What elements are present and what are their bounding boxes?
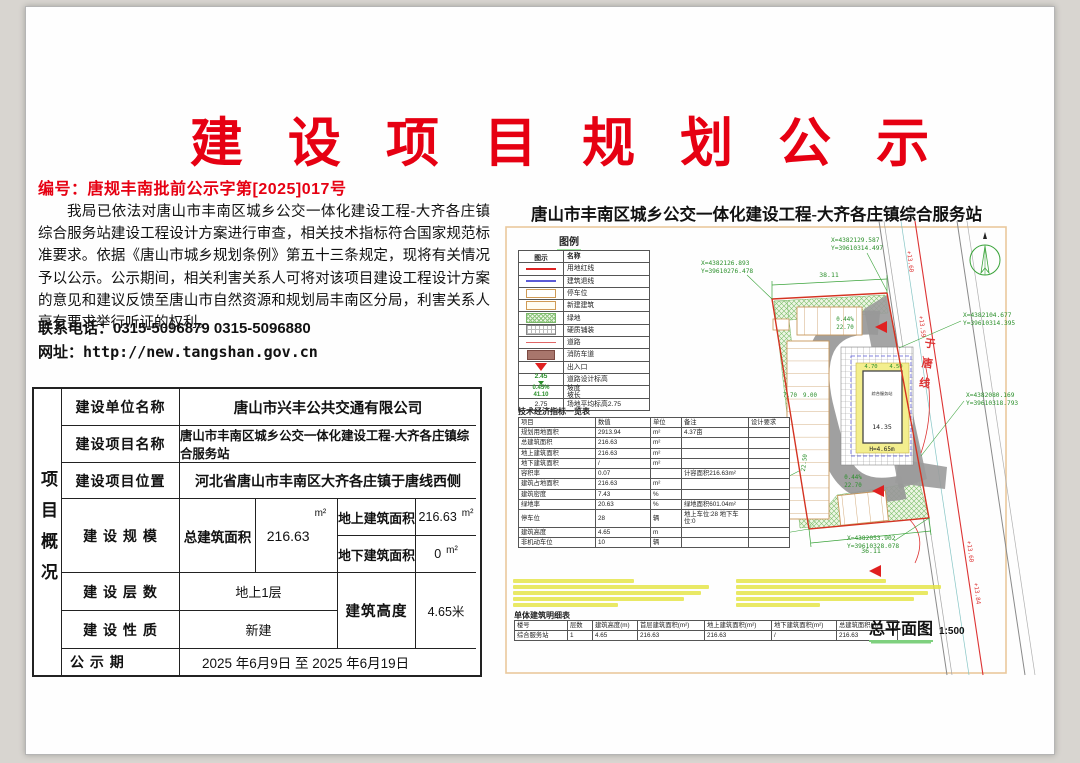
legend-col-symbol: 图示 [519,251,564,262]
legend-row: 硬质铺装 [519,325,649,337]
below-area-unit: m² [446,536,458,556]
table-cell [749,438,790,448]
slope-len-1: 22.70 [836,325,854,331]
road-line-icon [519,337,564,348]
hard-paving-icon [519,325,564,336]
coord-label-x: X=4382129.587 [831,237,880,244]
notice-page: 建 设 项 目 规 划 公 示 编号：唐规丰南批前公示字第[2025]017号 … [25,6,1055,755]
floors-label: 建 设 层 数 [62,573,180,611]
legend-item-label: 新建建筑 [564,300,649,311]
coord-label-y: Y=39610276.478 [701,268,753,275]
floors-value: 地上1层 [180,573,338,611]
table-cell: 216.63 [596,448,651,458]
page-title: 建 设 项 目 规 划 公 示 [26,101,1054,177]
table-cell: 地下建筑面积 [519,458,596,468]
coord-label-y: Y=39610328.078 [847,543,899,550]
plan-scale-label: 总平面图 1:500 [869,615,965,642]
coord-label-y: Y=39610318.793 [966,400,1018,407]
coord-label-y: Y=39610314.497 [831,245,883,252]
table-cell: 辆 [651,510,682,527]
road-elevation-icon: 2.45 [519,374,564,385]
table-cell: 2913.94 [596,428,651,438]
project-label: 建设项目名称 [62,426,180,463]
entrance-arrow-icon [869,565,881,577]
table-row: 地上建筑面积216.63m² [519,448,790,458]
project-value: 唐山市丰南区城乡公交一体化建设工程-大齐各庄镇综合服务站 [180,426,476,463]
coord-label-x: X=4382126.893 [701,260,750,267]
legend-item-label: 绿地 [564,312,649,323]
table-cell: 216.63 [705,631,772,641]
table-header-cell: 建筑高度(m) [593,621,638,631]
legend-item-label: 消防车道 [564,349,649,360]
unit-value: 唐山市兴丰公共交通有限公司 [180,389,476,426]
table-header-cell: 楼号 [515,621,568,631]
table-cell: 总建筑面积 [519,438,596,448]
setback-line-icon [519,276,564,287]
table-cell: / [772,631,837,641]
entrance-exit-icon [519,362,564,373]
table-cell: 综合服务站 [515,631,568,641]
legend-row: 道路 [519,337,649,349]
elevation-label: +13.60 [905,250,915,273]
slope-pct-2: 0.44% [844,475,862,481]
north-compass-icon [970,232,1000,275]
table-cell [749,469,790,479]
table-cell: 绿地率 [519,499,596,509]
above-area-value: 216.63 m² [416,499,476,536]
table-cell [682,448,749,458]
table-cell [651,469,682,479]
notes-text-lines [513,579,945,607]
table-cell: 建筑密度 [519,489,596,499]
building-length-label: 14.35 [872,423,892,431]
table-header-cell: 地上建筑面积(m²) [705,621,772,631]
above-area-unit: m² [462,499,474,519]
coord-label-x: X=4382104.677 [963,312,1012,319]
table-cell: 216.63 [638,631,705,641]
table-row: 容积率0.07计容面积216.63m² [519,469,790,479]
table-cell: 容积率 [519,469,596,479]
table-cell [749,458,790,468]
table-cell [682,438,749,448]
table-cell: 28 [596,510,651,527]
legend-row: 消防车道 [519,349,649,361]
coord-label-y: Y=39610314.395 [963,320,1015,327]
table-cell: m [651,527,682,537]
table-cell: m² [651,479,682,489]
table-cell: 地上车位:28 地下车位:0 [682,510,749,527]
table-cell: 0.07 [596,469,651,479]
legend-item-label: 坡度 坡长 [564,386,649,397]
table-cell: 地上建筑面积 [519,448,596,458]
table-header-cell: 地下建筑面积(m²) [772,621,837,631]
table-row: 地下建筑面积/m² [519,458,790,468]
plan-scale-value: 1:500 [939,626,965,637]
tech-indicators-table: 项目数值单位备注设计要求规划用地面积2913.94m²4.37亩总建筑面积216… [518,417,790,548]
table-cell: m² [651,438,682,448]
table-cell: 7.43 [596,489,651,499]
table-cell [682,479,749,489]
table-cell: 216.63 [596,479,651,489]
table-cell: 辆 [651,537,682,547]
table-header-row: 楼号层数建筑高度(m)首层建筑面积(m²)地上建筑面积(m²)地下建筑面积(m²… [515,621,898,631]
slope-len-2: 22.70 [844,483,862,489]
table-row: 规划用地面积2913.94m²4.37亩 [519,428,790,438]
table-cell: % [651,489,682,499]
below-area-number: 0 [434,547,441,561]
table-cell: 216.63 [596,438,651,448]
table-row: 综合服务站14.65216.63216.63/216.63 [515,631,898,641]
legend-row: 建筑退线 [519,276,649,288]
website-url: 网址：http://new.tangshan.gov.cn [38,341,318,362]
table-cell: 计容面积216.63m² [682,469,749,479]
table-cell: 4.65 [593,631,638,641]
table-header-cell: 首层建筑面积(m²) [638,621,705,631]
legend-row: 0.45% 41.10 坡度 坡长 [519,386,649,398]
total-area-number: 216.63 [267,528,310,544]
table-cell: m² [651,458,682,468]
table-header-cell: 层数 [568,621,593,631]
table-row: 停车位28辆地上车位:28 地下车位:0 [519,510,790,527]
table-row: 总建筑面积216.63m² [519,438,790,448]
legend-item-label: 停车位 [564,288,649,299]
legend-row: 出入口 [519,362,649,374]
table-cell [749,499,790,509]
table-cell [749,448,790,458]
table-cell: 10 [596,537,651,547]
elevation-label: +13.59 [917,315,927,338]
table-cell: 规划用地面积 [519,428,596,438]
table-cell [749,428,790,438]
legend-item-label: 道路设计标高 [564,374,649,385]
contact-phone: 联系电话：0315-5096879 0315-5096880 [38,317,311,338]
legend-item-label: 用地红线 [564,263,649,274]
coord-label-x: X=4382053.902 [847,535,896,542]
parking-stall-icon [519,288,564,299]
table-header-row: 项目数值单位备注设计要求 [519,418,790,428]
slope-pct-1: 0.44% [836,317,854,323]
height-label: 建筑高度 [338,573,416,649]
elevation-label: +13.60 [965,540,975,563]
slope-sample: 0.45% 41.10 [532,385,549,398]
table-cell: 建筑高度 [519,527,596,537]
table-cell [749,479,790,489]
legend-row: 停车位 [519,288,649,300]
total-area-label: 总建筑面积 [180,499,256,573]
nature-label: 建 设 性 质 [62,611,180,649]
building-width-dim-1: 4.70 [864,364,877,370]
building-name-label: 综合服务站 [872,390,893,397]
table-header-cell: 设计要求 [749,418,790,428]
table-cell: m² [651,428,682,438]
entrance-arc-2 [909,519,920,563]
legend-col-name: 名称 [564,251,649,262]
table-row: 建筑高度4.65m [519,527,790,537]
red-boundary-line-icon [519,263,564,274]
table-row: 绿地率20.63%绿地面积601.04m² [519,499,790,509]
table-cell [682,489,749,499]
legend-item-label: 硬质铺装 [564,325,649,336]
building-block: 综合服务站 14.35 H=4.65m 4.70 4.50 [841,347,913,465]
unit-label: 建设单位名称 [62,389,180,426]
above-area-number: 216.63 [419,510,457,524]
table-row: 非机动车位10辆 [519,537,790,547]
legend-item-label: 建筑退线 [564,276,649,287]
green-space-icon [519,312,564,323]
notice-paragraph: 我局已依法对唐山市丰南区城乡公交一体化建设工程-大齐各庄镇综合服务站建设工程设计… [38,201,490,334]
new-building [863,371,902,443]
table-cell [682,458,749,468]
elevation-label: +13.84 [972,582,982,605]
height-value: 4.65米 [416,573,476,649]
location-value: 河北省唐山市丰南区大齐各庄镇于唐线西侧 [180,463,476,499]
legend-table: 图示 名称 用地红线 建筑退线 停车位 新建建筑 绿地 硬质铺装 [518,250,650,411]
table-cell: 20.63 [596,499,651,509]
below-area-value: 0 m² [416,536,476,573]
legend-header-row: 图示 名称 [519,251,649,263]
total-area-value: 216.63 m² [256,499,338,573]
stall-dim-b: 9.00 [803,393,817,399]
table-cell: 1 [568,631,593,641]
table-cell: 停车位 [519,510,596,527]
table-cell: m² [651,448,682,458]
table-header-cell: 项目 [519,418,596,428]
table-cell: 建筑占地面积 [519,479,596,489]
building-detail-table: 楼号层数建筑高度(m)首层建筑面积(m²)地上建筑面积(m²)地下建筑面积(m²… [514,620,898,641]
period-label: 公 示 期 [62,649,180,675]
location-label: 建设项目位置 [62,463,180,499]
table-cell [749,489,790,499]
scale-label: 建 设 规 模 [62,499,180,573]
legend-row: 新建建筑 [519,300,649,312]
table-cell: / [596,458,651,468]
table-cell: 4.37亩 [682,428,749,438]
table-header-cell: 备注 [682,418,749,428]
table-cell: 非机动车位 [519,537,596,547]
table-row: 建筑密度7.43% [519,489,790,499]
legend-item-label: 道路 [564,337,649,348]
above-area-label: 地上建筑面积 [338,499,416,536]
fire-lane-icon [519,349,564,360]
total-area-unit: m² [315,499,327,519]
document-number: 编号：唐规丰南批前公示字第[2025]017号 [38,175,346,199]
tech-table-title: 技术经济指标一览表 [518,406,590,417]
building-height-label: H=4.65m [869,446,895,453]
table-header-cell: 单位 [651,418,682,428]
notice-photo: { "notice": { "title": "建 设 项 目 规 划 公 示"… [0,0,1080,763]
project-summary-table: 项目概况 建设单位名称 唐山市兴丰公共交通有限公司 建设项目名称 唐山市丰南区城… [32,387,482,677]
plan-name: 总平面图 [869,615,933,642]
table-row: 建筑占地面积216.63m² [519,479,790,489]
dim-top: 38.11 [819,271,839,279]
nature-value: 新建 [180,611,338,649]
legend-row: 用地红线 [519,263,649,275]
coord-label-x: X=4382080.169 [966,392,1015,399]
table-cell [682,537,749,547]
below-area-label: 地下建筑面积 [338,536,416,573]
table-cell [749,537,790,547]
new-building-icon [519,300,564,311]
parking-row-bottom [838,491,889,526]
table-cell: 绿地面积601.04m² [682,499,749,509]
table-cell: 4.65 [596,527,651,537]
legend-row: 绿地 [519,312,649,324]
table-cell: % [651,499,682,509]
slope-icon: 0.45% 41.10 [519,386,564,397]
stall-dim-a: 7.70 [783,393,797,399]
table-cell [682,527,749,537]
table-cell [749,527,790,537]
table-header-cell: 数值 [596,418,651,428]
table-cell [749,510,790,527]
period-value: 2025 年6月9日 至 2025 年6月19日 [180,649,476,675]
legend-item-label: 出入口 [564,362,649,373]
summary-side-label: 项目概况 [34,389,62,675]
